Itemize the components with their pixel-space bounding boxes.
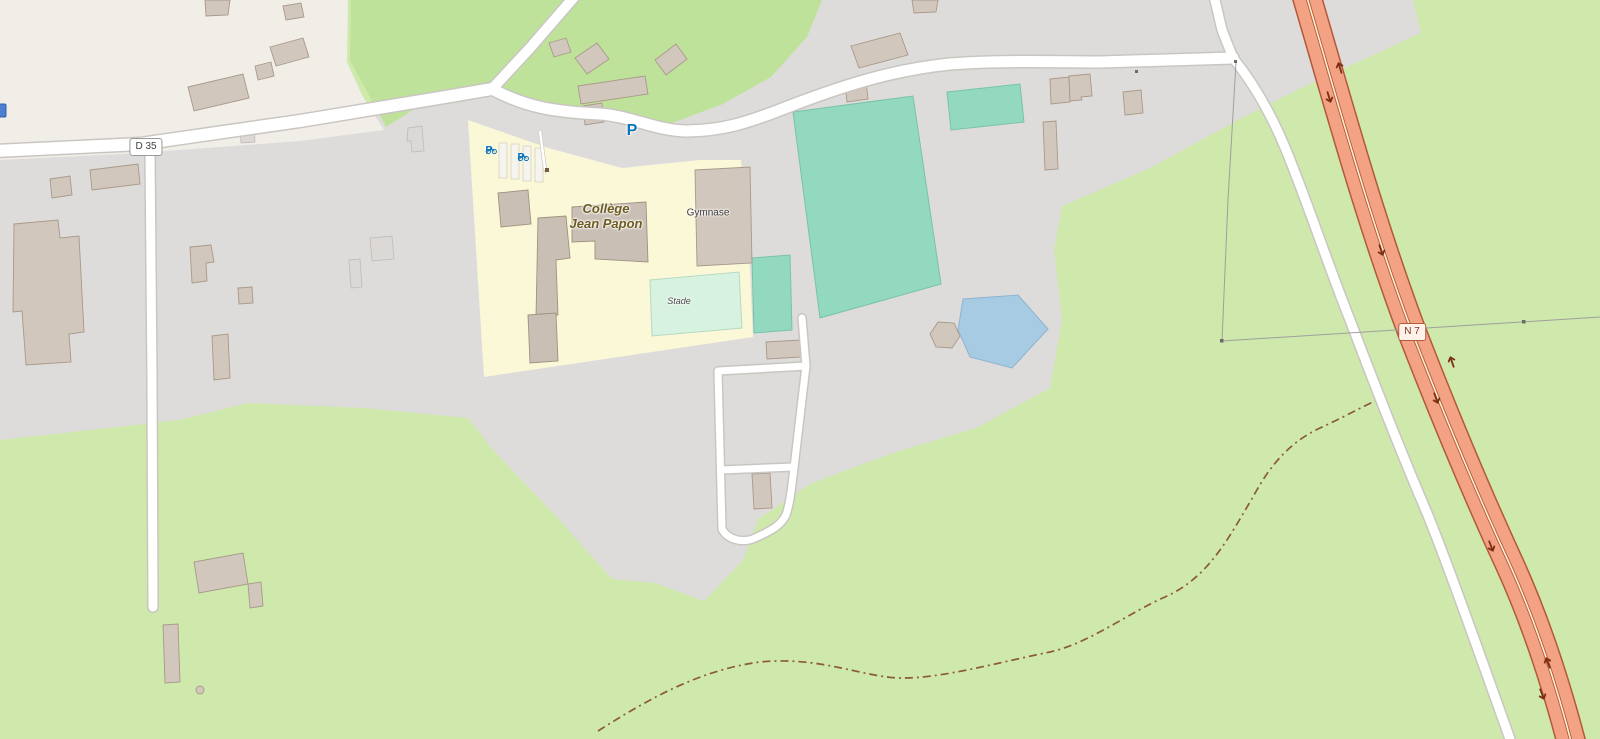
sports-pitch-north — [947, 84, 1024, 130]
map-symbol-icon — [0, 104, 6, 117]
building — [912, 0, 938, 13]
power-pylon-icon — [1234, 60, 1237, 63]
bicycle-icon — [485, 146, 497, 155]
sports-pitch-school — [752, 255, 792, 333]
building — [1043, 121, 1058, 170]
power-pylon-icon — [1135, 70, 1138, 73]
bicycle-parking-icon: P — [485, 146, 492, 157]
road-ref-d35: D 35 — [129, 138, 162, 156]
bicycle-icon — [517, 153, 529, 162]
building — [212, 334, 230, 380]
building — [238, 287, 253, 304]
school-building — [528, 313, 558, 363]
building — [349, 259, 362, 288]
building — [283, 3, 304, 20]
building — [752, 473, 772, 509]
power-pylon-icon — [1522, 320, 1526, 324]
building — [248, 582, 263, 608]
stade-field — [650, 272, 742, 336]
building — [766, 340, 801, 359]
map-viewport[interactable]: D 35 N 7 P P P Collège Jean Papon Gymnas… — [0, 0, 1600, 739]
building — [1123, 90, 1143, 115]
bicycle-parking-icon: P — [517, 153, 524, 164]
building-round — [196, 686, 204, 694]
power-pylon-icon — [1220, 339, 1224, 343]
gymnase-building — [695, 167, 752, 266]
parking-bay — [499, 143, 507, 178]
building — [1050, 77, 1070, 104]
gate-icon — [545, 168, 549, 172]
deadend-road — [150, 153, 153, 607]
building — [370, 236, 394, 261]
school-building — [498, 190, 531, 227]
map-layers — [0, 0, 1600, 739]
road-ref-n7: N 7 — [1398, 323, 1426, 341]
building — [50, 176, 72, 198]
building — [205, 0, 230, 16]
building — [163, 624, 180, 683]
